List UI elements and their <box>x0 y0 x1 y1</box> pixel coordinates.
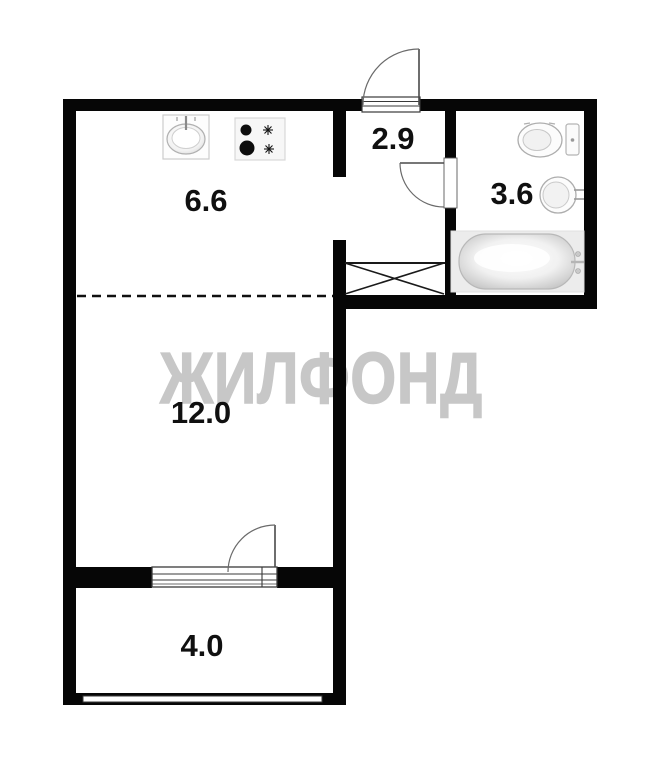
toilet-hinge-mark <box>524 123 530 124</box>
wall-bath-hall-upper <box>445 111 456 158</box>
kitchen-area-label: 6.6 <box>184 183 227 218</box>
stove-spark-symbol <box>263 125 273 135</box>
balcony-glazing <box>83 696 322 702</box>
stove-icon <box>235 118 285 160</box>
stove-burner-small <box>241 125 252 136</box>
entrance-door <box>362 49 420 112</box>
wall-mid-vertical <box>333 240 346 705</box>
balcony-area-label: 4.0 <box>180 628 223 663</box>
balcony-door-window <box>152 525 277 587</box>
bathtub-icon <box>451 231 584 292</box>
wall-left <box>63 99 76 705</box>
stove-spark-symbol <box>264 144 274 154</box>
wall-top-right <box>420 99 597 111</box>
stove-burner-large <box>240 141 255 156</box>
bathroom-door-frame <box>444 158 457 208</box>
bathtub-highlight <box>474 244 550 272</box>
wall-balcony-top-right <box>277 567 346 588</box>
toilet-hinge-mark <box>549 123 555 124</box>
wall-bathroom-right <box>584 99 597 309</box>
wall-balcony-top-left <box>63 567 152 588</box>
floorplan-canvas: ЖИЛФОНД <box>0 0 646 768</box>
bathroom-door-swing-arc <box>400 163 444 207</box>
bathroom-door <box>400 158 457 208</box>
bathroom-area-label: 3.6 <box>490 176 533 211</box>
hallway-area-label: 2.9 <box>371 121 414 156</box>
floorplan-svg: ЖИЛФОНД <box>0 0 646 768</box>
washbasin-icon <box>540 177 584 213</box>
toilet-icon <box>518 123 579 157</box>
kitchen-sink-icon <box>163 115 209 159</box>
balcony-door-swing-arc <box>228 525 275 572</box>
living-room-area-label: 12.0 <box>171 395 231 430</box>
bathtub-tap <box>576 269 581 274</box>
entrance-door-sill <box>362 97 420 112</box>
sink-basin-inner <box>172 128 200 149</box>
toilet-bowl-inner <box>523 130 551 151</box>
washbasin-inner <box>543 182 569 208</box>
wall-top-left <box>63 99 362 111</box>
wall-kitchen-hall-stub <box>333 111 346 177</box>
bathtub-tap <box>576 252 581 257</box>
toilet-flush-button <box>571 138 575 142</box>
vent-shaft-icon <box>345 263 445 294</box>
wall-hall-bath-bottom <box>333 295 597 309</box>
